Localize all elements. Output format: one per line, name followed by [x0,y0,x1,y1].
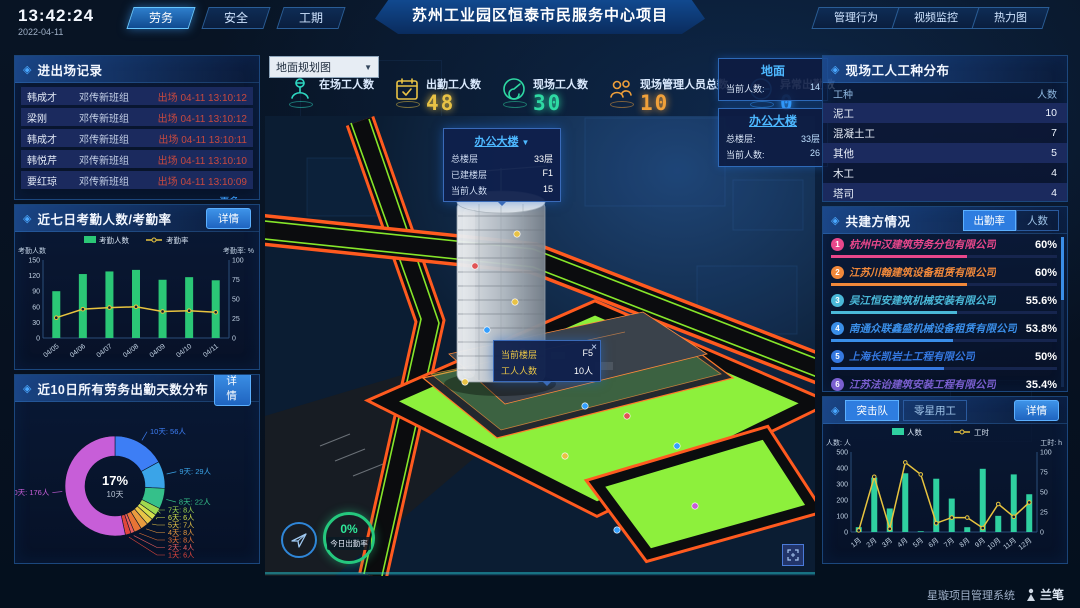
svg-text:150: 150 [28,258,40,265]
partner-progress-fill [831,255,967,258]
info-row-label: 当前人数: [726,148,765,161]
exit-event: 出场 04-11 13:10:09 [158,173,247,188]
svg-text:考勤人数: 考勤人数 [18,246,46,255]
svg-text:50: 50 [1040,490,1048,497]
logo-icon [1025,588,1037,602]
svg-text:200: 200 [836,498,848,505]
partner-name[interactable]: 江苏川翰建筑设备租赁有限公司 [849,265,996,280]
panel-title: 近七日考勤人数/考勤率 [37,209,171,228]
info-box-row: 当前人数:26 [726,148,820,161]
worker-type-row: 塔司4 [823,183,1067,202]
svg-text:500: 500 [836,450,848,457]
panel-attendance-distribution: ◈ 近10日所有劳务出勤天数分布 详情 10天: 56人9天: 29人8天: 2… [14,374,260,564]
svg-text:5月: 5月 [911,536,925,549]
partner-line: 6江苏法诒建筑安装工程有限公司35.4% [831,377,1057,392]
svg-text:10月: 10月 [986,536,1003,551]
chevron-down-icon: ▼ [364,63,372,72]
svg-text:04/05: 04/05 [42,343,60,359]
svg-text:100: 100 [1040,450,1052,457]
partner-line: 5上海长凯岩土工程有限公司50% [831,349,1057,364]
stat-value: 10 [640,92,728,114]
group-icon [608,76,634,106]
svg-text:11月: 11月 [1002,536,1018,551]
svg-text:0天: 176人: 0天: 176人 [15,488,50,497]
worker-name: 韩成才 [27,131,79,146]
partner-row: 1杭州中汉建筑劳务分包有限公司60% [823,234,1067,262]
panel-title: 近10日所有劳务出勤天数分布 [37,379,208,398]
partner-value: 55.6% [1026,295,1057,307]
stat-label: 现场工人数 [533,76,588,92]
squad-tab-突击队[interactable]: 突击队 [845,400,899,421]
worker-name: 要红琼 [27,173,79,188]
tooltip-row-label: 总楼层 [451,152,478,165]
tab-label: 热力图 [994,8,1027,28]
svg-text:100: 100 [836,514,848,521]
expand-icon [787,549,799,561]
partners-tab-人数[interactable]: 人数 [1016,210,1059,231]
worker-type-name: 其他 [833,146,854,161]
svg-text:1天: 6人: 1天: 6人 [168,551,194,560]
detail-button[interactable]: 详情 [1014,400,1059,421]
worker-type-name: 混凝土工 [833,126,875,141]
partner-name[interactable]: 上海长凯岩土工程有限公司 [849,349,975,364]
tab-label: 管理行为 [834,8,878,28]
stat-现场工人数: 现场工人数30 [501,76,588,114]
partner-value: 50% [1035,351,1057,363]
partner-progress [831,367,1057,370]
tab-label: 视频监控 [914,8,958,28]
dropdown-value: 地面规划图 [276,59,331,75]
team-name: 邓传新班组 [79,173,158,188]
stat-text: 现场工人数30 [533,76,588,114]
time-display: 13:42:24 [18,6,94,26]
diamond-icon: ◈ [23,212,31,225]
worker-type-row: 其他5 [823,143,1067,163]
squad-tab-零星用工[interactable]: 零星用工 [903,400,967,421]
worker-type-name: 塔司 [833,186,854,201]
partner-row: 3吴江恒安建筑机械安装有限公司55.6% [823,290,1067,318]
svg-text:人数: 人: 人数: 人 [826,438,851,447]
tab-工期[interactable]: 工期 [276,7,345,29]
entry-record-row: 梁刚邓传新班组出场 04-11 13:10:12 [21,108,253,126]
tooltip-row-label: 已建楼层 [451,168,487,181]
svg-text:9天: 29人: 9天: 29人 [179,467,211,476]
date-display: 2022-04-11 [18,27,94,37]
stat-label: 现场管理人员总数 [640,76,728,92]
partner-row: 4南通众联鑫盛机械设备租赁有限公司53.8% [823,318,1067,346]
stat-text: 现场管理人员总数10 [640,76,728,114]
svg-text:100: 100 [232,258,244,265]
svg-text:考勤人数: 考勤人数 [99,235,129,245]
stat-value [319,92,374,114]
svg-text:90: 90 [32,289,40,296]
svg-text:0: 0 [232,336,236,343]
tooltip-row: 工人人数10人 [501,364,593,377]
partner-name[interactable]: 江苏法诒建筑安装工程有限公司 [849,377,996,392]
panel-worker-types: ◈ 现场工人工种分布 工种 人数 泥工10混凝土工7其他5木工4塔司4 [822,55,1068,202]
diamond-icon: ◈ [831,404,839,417]
tab-安全[interactable]: 安全 [201,7,270,29]
floor-tooltip: × 当前楼层F5工人人数10人 [493,340,601,382]
worker-type-name: 木工 [833,166,854,181]
svg-text:04/07: 04/07 [96,343,114,359]
rank-badge: 4 [831,322,844,335]
diamond-icon: ◈ [23,382,31,395]
tab-label: 劳务 [149,8,173,28]
entry-record-row: 要红琼邓传新班组出场 04-11 13:10:09 [21,171,253,189]
exit-event: 出场 04-11 13:10:10 [158,152,247,167]
partner-value: 60% [1035,267,1057,279]
svg-text:8月: 8月 [958,536,972,549]
panel-squad: ◈ 突击队零星用工 详情 人数工时人数: 人工时: h0100200300400… [822,396,1068,564]
stat-value: 30 [533,92,588,114]
svg-text:1月: 1月 [849,536,863,549]
partner-progress [831,311,1057,314]
partner-progress-fill [831,283,967,286]
worker-type-count: 5 [1051,147,1057,159]
partner-row: 6江苏法诒建筑安装工程有限公司35.4% [823,374,1067,392]
partner-progress [831,283,1057,286]
svg-text:2月: 2月 [865,536,879,549]
svg-text:4月: 4月 [896,536,910,549]
svg-text:0: 0 [1040,530,1044,537]
partner-progress-fill [831,339,953,342]
info-box-row: 总楼层:33层 [726,132,820,145]
exit-event: 出场 04-11 13:10:12 [158,89,247,104]
partner-row: 2江苏川翰建筑设备租赁有限公司60% [823,262,1067,290]
svg-text:60: 60 [32,304,40,311]
svg-text:75: 75 [1040,470,1048,477]
svg-text:人数: 人数 [907,427,922,437]
stat-value: 48 [426,92,481,114]
svg-text:04/06: 04/06 [69,343,87,359]
svg-text:考勤率: %: 考勤率: % [223,246,254,255]
footer: 星璇项目管理系统 兰笔 [927,586,1064,603]
team-name: 邓传新班组 [79,131,158,146]
tooltip-row-label: 当前楼层 [501,348,537,361]
top-bar: 13:42:24 2022-04-11 劳务安全工期 苏州工业园区恒泰市民服务中… [0,0,1080,44]
tooltip-row-value: F1 [528,168,553,181]
info-row-value: 33层 [801,132,820,145]
diamond-icon: ◈ [831,63,839,76]
tooltip-row-label: 当前人数 [451,184,487,197]
building-tooltip: 办公大楼▼ 总楼层33层已建楼层F1当前人数15 [443,128,561,202]
partner-name[interactable]: 杭州中汉建筑劳务分包有限公司 [849,237,996,252]
info-row-value: 14 [810,82,820,95]
detail-button[interactable]: 详情 [206,208,251,229]
partner-value: 53.8% [1026,323,1057,335]
page-title: 苏州工业园区恒泰市民服务中心项目 [375,0,705,34]
diamond-icon: ◈ [23,63,31,76]
info-row-label: 当前人数: [726,82,765,95]
squad-chart: 人数工时人数: 人工时: h01002003004005000255075100… [823,424,1065,558]
svg-text:300: 300 [836,482,848,489]
partner-line: 1杭州中汉建筑劳务分包有限公司60% [831,237,1057,252]
svg-text:12月: 12月 [1017,536,1034,551]
svg-text:50: 50 [232,297,240,304]
tab-热力图[interactable]: 热力图 [971,7,1049,29]
worker-type-count: 4 [1051,167,1057,179]
worker-type-row: 泥工10 [823,103,1067,123]
partner-line: 4南通众联鑫盛机械设备租赁有限公司53.8% [831,321,1057,336]
gauge-icon [501,76,527,106]
info-box-办公大楼: 办公大楼总楼层:33层当前人数:26 [718,108,828,167]
partner-line: 2江苏川翰建筑设备租赁有限公司60% [831,265,1057,280]
fullscreen-button[interactable] [782,544,804,566]
partner-progress [831,339,1057,342]
calendar-check-icon [394,76,420,106]
tooltip-row: 当前人数15 [451,184,553,197]
rank-badge: 1 [831,238,844,251]
svg-text:0: 0 [844,530,848,537]
tab-劳务[interactable]: 劳务 [126,7,195,29]
tooltip-row-label: 工人人数 [501,364,537,377]
more-link[interactable]: 更多>> [15,192,259,200]
map-layer-dropdown[interactable]: 地面规划图 ▼ [269,56,379,78]
worker-name: 韩成才 [27,89,79,104]
worker-types-table: 泥工10混凝土工7其他5木工4塔司4 [823,103,1067,202]
team-name: 邓传新班组 [79,152,158,167]
tooltip-row-value: 33层 [520,152,553,165]
building-tooltip-title[interactable]: 办公大楼▼ [451,133,553,149]
worker-icon [287,76,313,106]
svg-text:04/10: 04/10 [175,343,193,359]
svg-text:工时: h: 工时: h [1040,438,1062,447]
stat-text: 在场工人数 [319,76,374,114]
info-row-value: 26 [810,148,820,161]
svg-text:工时: 工时 [974,427,989,437]
diamond-icon: ◈ [831,214,839,227]
clock: 13:42:24 2022-04-11 [18,6,94,37]
svg-text:6月: 6月 [927,536,941,549]
svg-text:04/08: 04/08 [122,343,140,359]
svg-text:9月: 9月 [973,536,987,549]
map-area: 地面规划图 ▼ 在场工人数出勤工人数48现场工人数30现场管理人员总数10异常出… [265,44,815,584]
worker-type-row: 木工4 [823,163,1067,183]
svg-text:10天: 10天 [107,490,124,499]
tooltip-row: 已建楼层F1 [451,168,553,181]
tooltip-row-value: 15 [529,184,553,197]
brand-logo: 兰笔 [1025,586,1064,603]
worker-name: 梁刚 [27,110,79,125]
stat-label: 在场工人数 [319,76,374,92]
svg-text:04/09: 04/09 [149,343,167,359]
svg-text:30: 30 [32,320,40,327]
svg-text:04/11: 04/11 [202,343,220,359]
partner-row: 5上海长凯岩土工程有限公司50% [823,346,1067,374]
svg-text:3月: 3月 [880,536,894,549]
partner-name[interactable]: 南通众联鑫盛机械设备租赁有限公司 [849,321,1017,336]
stat-出勤工人数: 出勤工人数48 [394,76,481,114]
svg-text:25: 25 [1040,510,1048,517]
worker-types-header: 工种 人数 [823,83,1067,103]
partner-progress-fill [831,367,944,370]
partners-tab-出勤率[interactable]: 出勤率 [963,210,1017,231]
tooltip-row-value: 10人 [560,364,593,377]
svg-text:7月: 7月 [942,536,956,549]
svg-text:考勤率: 考勤率 [166,235,189,245]
worker-type-name: 泥工 [833,106,854,121]
tab-视频监控[interactable]: 视频监控 [891,7,980,29]
stat-text: 出勤工人数48 [426,76,481,114]
panel-partners: ◈ 共建方情况 出勤率人数 1杭州中汉建筑劳务分包有限公司60%2江苏川翰建筑设… [822,206,1068,392]
scene-bottom-glow [265,572,815,575]
tab-label: 工期 [299,8,323,28]
rank-badge: 3 [831,294,844,307]
panel-entry-exit: ◈ 进出场记录 韩成才邓传新班组出场 04-11 13:10:12梁刚邓传新班组… [14,55,260,200]
attendance-chart: 考勤人数考勤率考勤人数考勤率: %03060901201500255075100… [15,232,257,364]
rank-badge: 5 [831,350,844,363]
panel-title: 现场工人工种分布 [845,60,949,79]
partner-name[interactable]: 吴江恒安建筑机械安装有限公司 [849,293,996,308]
team-name: 邓传新班组 [79,110,158,125]
panel-attendance-7day: ◈ 近七日考勤人数/考勤率 详情 考勤人数考勤率考勤人数考勤率: %030609… [14,204,260,370]
compass-control[interactable] [281,522,317,558]
rank-badge: 6 [831,378,844,391]
partner-progress-fill [831,311,957,314]
chevron-down-icon: ▼ [522,138,530,147]
tab-管理行为[interactable]: 管理行为 [811,7,900,29]
tab-label: 安全 [224,8,248,28]
info-box-地面: 地面当前人数:14 [718,58,828,101]
partner-line: 3吴江恒安建筑机械安装有限公司55.6% [831,293,1057,308]
rank-badge: 2 [831,266,844,279]
svg-text:10天: 56人: 10天: 56人 [150,427,186,436]
worker-type-count: 7 [1051,127,1057,139]
entry-exit-list: 韩成才邓传新班组出场 04-11 13:10:12梁刚邓传新班组出场 04-11… [15,83,259,189]
partner-value: 60% [1035,239,1057,251]
partner-progress [831,255,1057,258]
gauge-value: 0% [326,522,372,536]
panel-title: 进出场记录 [37,60,102,79]
partner-value: 35.4% [1026,379,1057,391]
distribution-donut-chart: 10天: 56人9天: 29人8天: 22人7天: 8人6天: 6人5天: 7人… [15,402,257,560]
worker-type-count: 4 [1051,187,1057,199]
tooltip-row-value: F5 [568,348,593,361]
stat-在场工人数: 在场工人数 [287,76,374,114]
info-box-title[interactable]: 地面 [726,62,820,79]
system-name: 星璇项目管理系统 [927,587,1015,603]
exit-event: 出场 04-11 13:10:12 [158,110,247,125]
panel-title: 共建方情况 [845,211,910,230]
info-box-row: 当前人数:14 [726,82,820,95]
tooltip-row: 当前楼层F5 [501,348,593,361]
entry-record-row: 韩成才邓传新班组出场 04-11 13:10:12 [21,87,253,105]
partners-scrollbar[interactable] [1061,237,1064,387]
stat-label: 出勤工人数 [426,76,481,92]
exit-event: 出场 04-11 13:10:11 [158,131,247,146]
logo-text: 兰笔 [1040,586,1064,603]
info-box-title[interactable]: 办公大楼 [726,112,820,129]
team-name: 邓传新班组 [79,89,158,104]
svg-text:120: 120 [28,273,40,280]
partners-list: 1杭州中汉建筑劳务分包有限公司60%2江苏川翰建筑设备租赁有限公司60%3吴江恒… [823,234,1067,392]
entry-record-row: 韩悦芹邓传新班组出场 04-11 13:10:10 [21,150,253,168]
worker-name: 韩悦芹 [27,152,79,167]
gauge-label: 今日出勤率 [327,537,371,550]
svg-text:400: 400 [836,466,848,473]
worker-type-count: 10 [1045,107,1057,119]
today-attendance-gauge: 0% 今日出勤率 [323,512,375,564]
worker-type-row: 混凝土工7 [823,123,1067,143]
close-icon[interactable]: × [591,342,597,353]
stat-现场管理人员总数: 现场管理人员总数10 [608,76,728,114]
tooltip-row: 总楼层33层 [451,152,553,165]
svg-text:0: 0 [36,336,40,343]
svg-text:25: 25 [232,316,240,323]
svg-text:75: 75 [232,277,240,284]
entry-record-row: 韩成才邓传新班组出场 04-11 13:10:11 [21,129,253,147]
navigation-arrow-icon [290,531,308,549]
info-row-label: 总楼层: [726,132,756,145]
svg-text:17%: 17% [102,473,128,488]
